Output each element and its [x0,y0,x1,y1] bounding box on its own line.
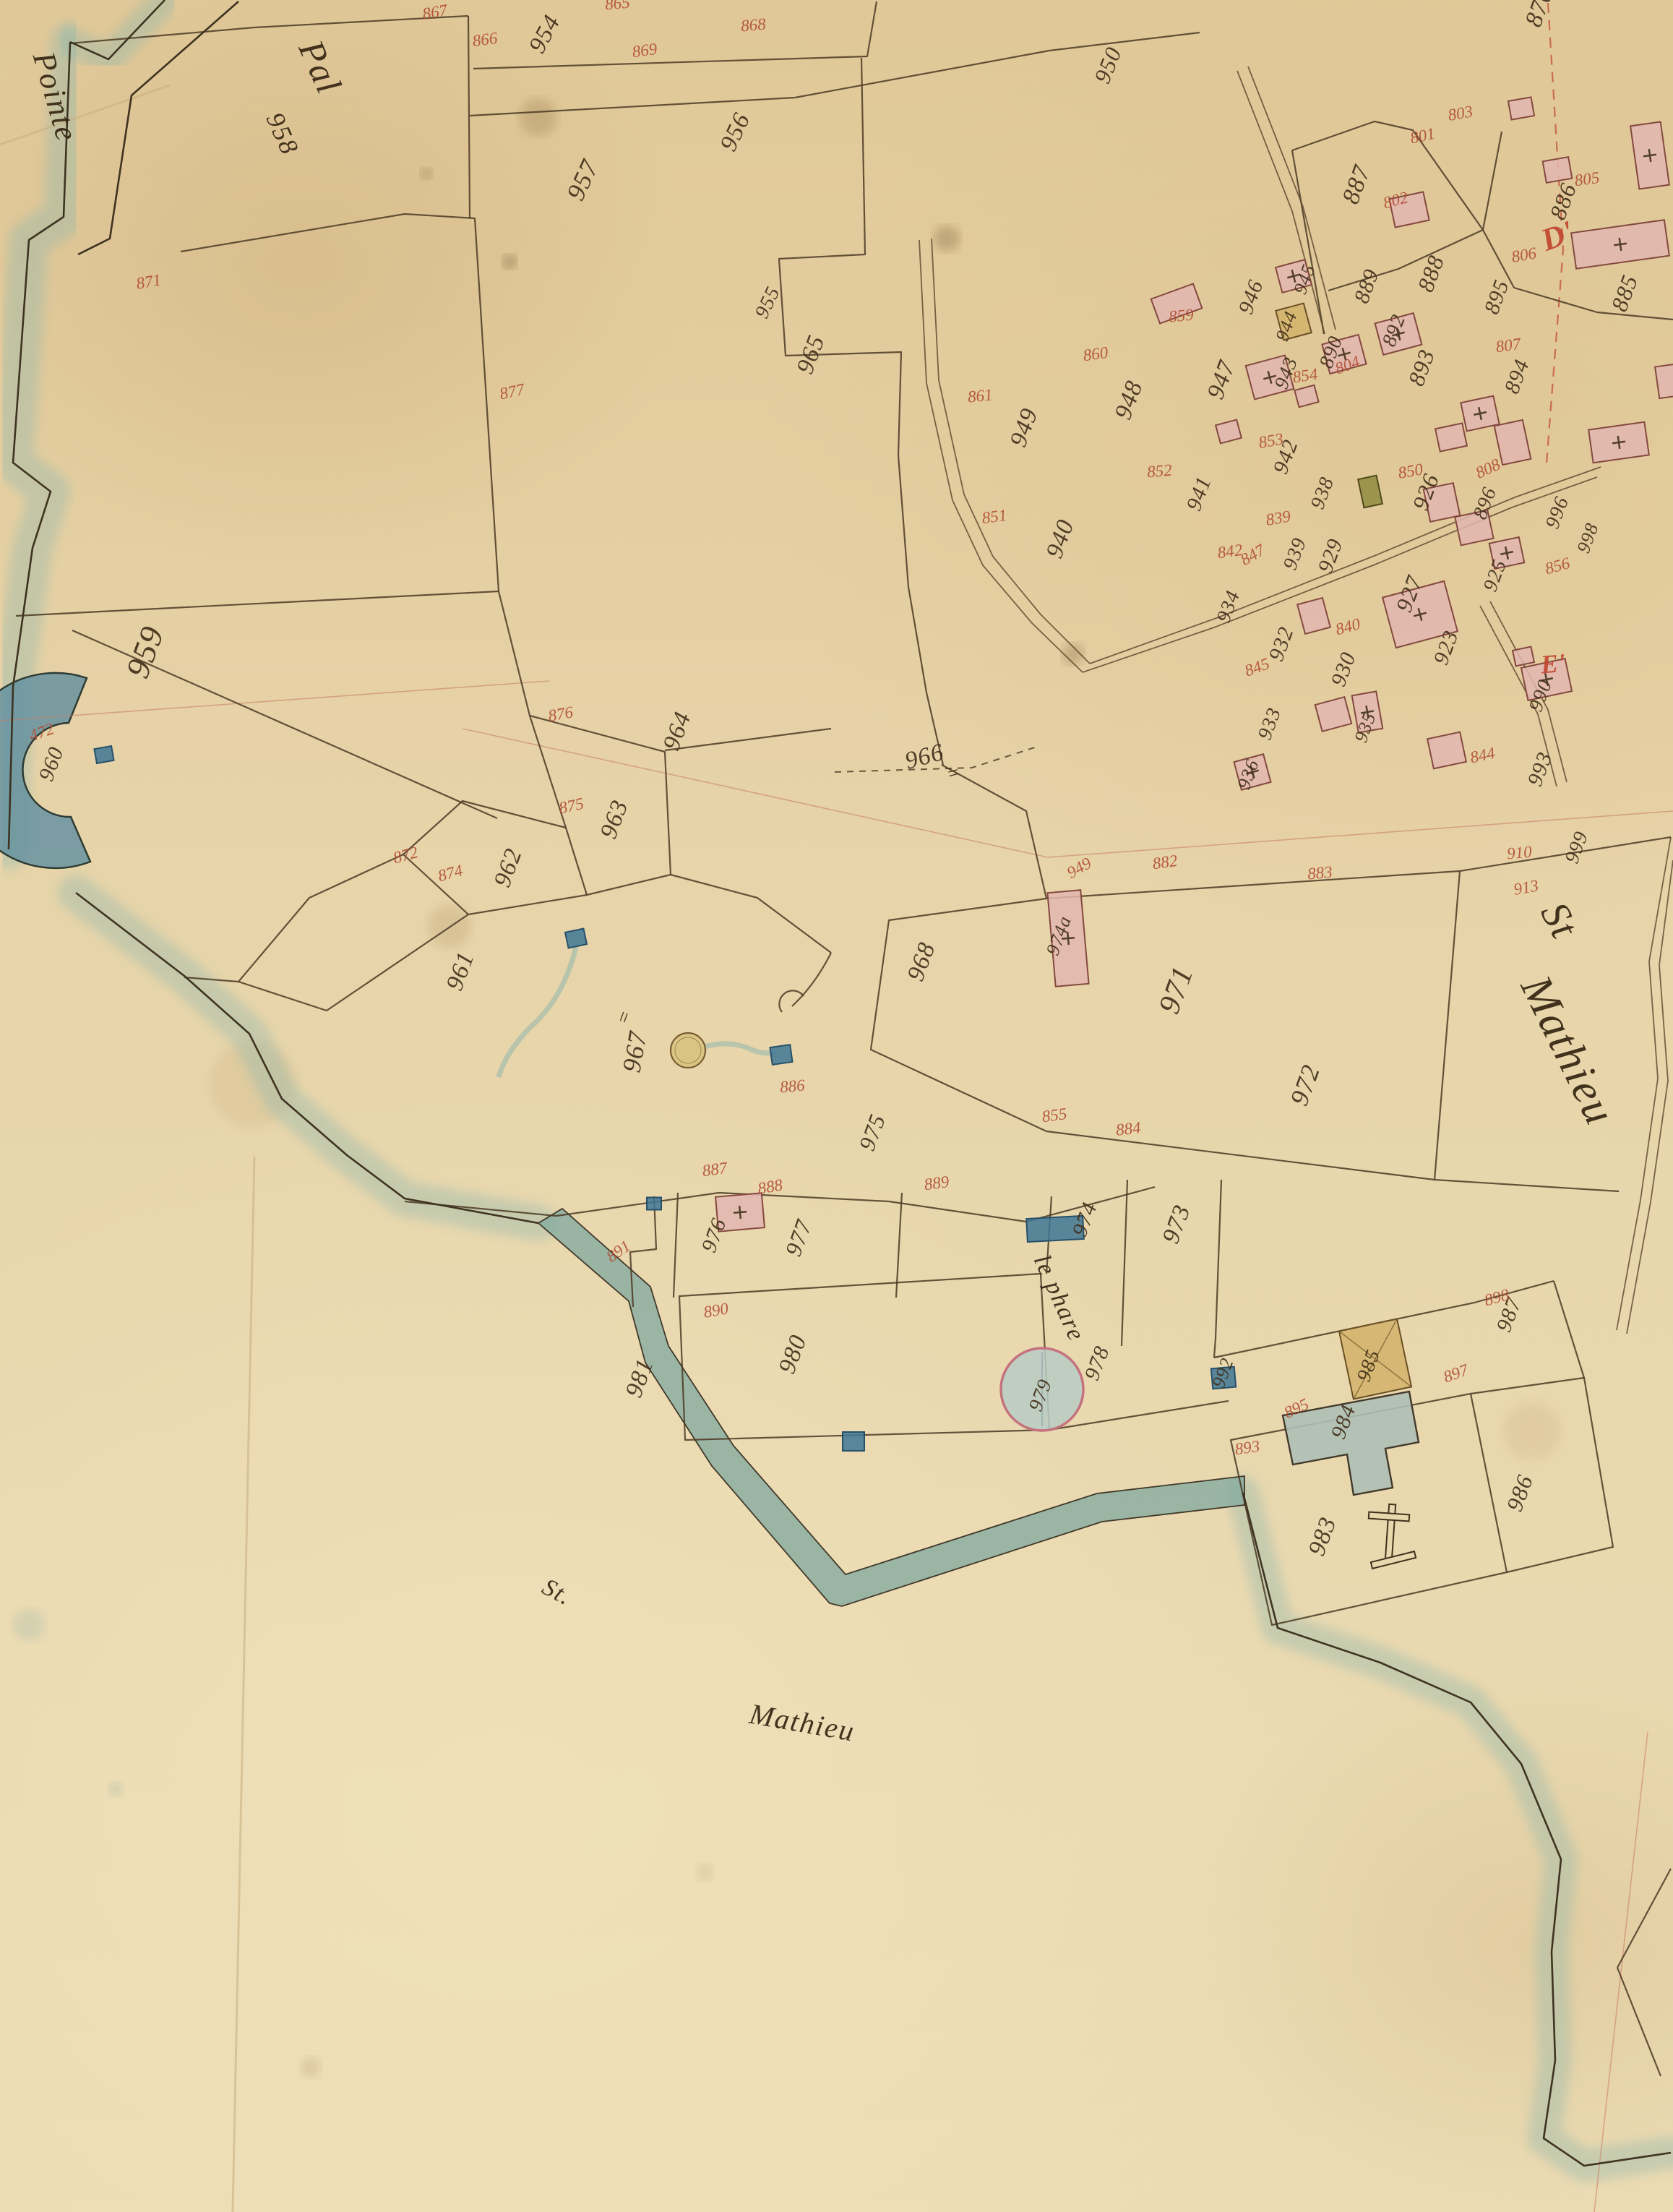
parcel-number-red: 877 [498,380,527,403]
parcel-boundary [674,1193,678,1298]
parcel-boundary [1435,871,1460,1180]
parcel-number-red: 884 [1115,1118,1142,1139]
parcel-number-black: 932 [1264,624,1298,664]
place-name-label: Mathieu [747,1697,858,1748]
building-pink [1513,647,1534,666]
parcel-number-black: 980 [774,1332,812,1377]
surveyor-equals-mark: = [944,760,963,786]
parcel-number-black: 934 [1213,588,1245,626]
parcel-number-black: 941 [1182,473,1216,514]
parcel-boundary [499,591,671,895]
parcel-boundary [468,16,470,218]
parcel-number-black: 983 [1304,1514,1342,1559]
parcel-boundary [181,214,475,252]
paper-stain [301,2057,321,2078]
parcel-number-red: 867 [421,1,450,23]
parcel-number-black: 967 [617,1028,653,1074]
place-name-label: Mathieu [1511,967,1625,1133]
building-blue [647,1198,661,1210]
parcel-boundary [1214,1339,1216,1358]
parcel-number-red: 840 [1333,614,1362,638]
building-pink [1427,732,1466,769]
parcel-number-black: 895 [1479,277,1513,317]
paper-stain [108,1782,123,1796]
paper-stain [520,98,557,136]
survey-line-red [463,729,1048,857]
road-edge [932,239,1090,664]
well-circle [671,1033,705,1068]
parcel-boundary [1514,288,1673,320]
parcel-number-black: 961 [442,948,480,994]
parcel-number-red: 874 [436,861,465,885]
parcel-number-black: 999 [1561,828,1594,867]
parcel-number-red: 861 [967,385,994,406]
parcel-boundary [779,58,943,765]
paper-crease [233,1157,254,2212]
building-pink [1508,97,1534,119]
parcel-boundary [1617,1869,1671,2076]
parcel-number-red: 806 [1510,244,1539,266]
section-letter: E' [1539,648,1566,680]
building-blue [565,929,587,948]
parcel-boundary [475,218,499,591]
parcel-number-black: 939 [1279,535,1312,573]
parcel-boundary [1122,1180,1127,1346]
parcel-number-black: 954 [524,11,566,58]
parcel-number-black: 896 [1469,484,1502,523]
parcel-number-red: 883 [1307,863,1333,883]
paper-stain [696,1864,713,1881]
parcel-number-black: 996 [1541,494,1574,532]
parcel-boundary [871,899,1046,1131]
parcel-number-black: 974 [1067,1199,1101,1240]
parcel-number-red: 868 [740,15,767,35]
parcel-number-black: 965 [792,332,830,377]
building-pink [1297,598,1330,634]
parcel-boundary [679,1274,1049,1440]
parcel-number-black: 949 [1005,405,1044,450]
road-edge [1627,860,1673,1334]
water-wash [1243,1493,1671,2166]
parcel-number-red: 869 [631,40,658,61]
parcel-number-red: 842 [1216,541,1244,562]
parcel-number-red: 897 [1441,1360,1471,1386]
parcel-number-black: 894 [1500,356,1534,397]
parcel-number-black: 973 [1158,1201,1196,1247]
parcel-number-black: 870 [1521,0,1559,30]
parcel-number-red: 871 [135,270,163,293]
building-pink [1588,422,1649,463]
parcel-number-red: 854 [1291,365,1319,387]
parcel-number-black: 963 [595,797,634,842]
parcel-number-red: 805 [1573,168,1601,190]
road-edge [919,240,1083,672]
cemetery-cross [1369,1512,1409,1522]
parcel-number-black: 950 [1089,43,1127,87]
parcel-number-red: 888 [757,1175,785,1198]
coastline [78,1,238,254]
surveyor-equals-mark: = [611,1006,637,1027]
place-name-label: St [1531,895,1587,946]
place-name-label: 958 [260,108,304,160]
parcel-boundary [1328,230,1483,291]
parcel-number-black: 959 [119,621,171,682]
place-name-label: St. [538,1574,577,1611]
parcel-number-black: 929 [1313,536,1347,576]
parcel-boundary [1046,1131,1435,1180]
parcel-boundary [1292,121,1483,230]
parcel-number-black: 947 [1203,356,1242,403]
road-edge [1083,477,1597,672]
parcel-number-black: 940 [1041,516,1080,562]
parcel-number-red: 860 [1082,343,1109,365]
parcel-number-red: 876 [547,703,575,725]
section-letter: D' [1536,214,1578,258]
building-pink [1543,157,1573,183]
parcel-number-red: 886 [779,1076,806,1097]
parcel-number-black: 956 [715,108,755,155]
parcel-boundary [1216,1180,1221,1339]
parcel-number-black: 948 [1110,377,1148,423]
cemetery-cross [1371,1551,1416,1569]
parcel-number-red: 801 [1408,124,1437,147]
parcel-boundary [1554,1281,1584,1378]
parcel-number-red: 859 [1168,306,1195,326]
place-name-label: Pal [291,33,350,100]
place-name-label: le phare [1028,1251,1091,1345]
parcel-number-black: 960 [34,744,68,784]
parcel-number-red: 887 [701,1159,729,1180]
building-olive [1358,476,1382,508]
stream [705,1044,775,1053]
harbor-rampart [538,1209,1244,1606]
building-blue [94,746,113,763]
paper-stain [13,1609,45,1641]
parcel-number-black: 972 [1284,1060,1325,1109]
parcel-number-black: 993 [1523,749,1557,789]
paper-stain [1503,1402,1561,1460]
coastline [1243,1493,1671,2166]
parcel-number-black: 955 [751,283,785,322]
parcel-number-red: 890 [702,1299,731,1321]
building-blue [770,1045,792,1065]
building-pink [1571,220,1669,269]
parcel-number-red: 844 [1468,744,1497,767]
parcel-boundary [1435,1180,1619,1191]
parcel-number-red: 852 [1146,461,1173,481]
parcel-number-red: 913 [1513,876,1540,899]
parcel-number-red: 845 [1242,654,1272,680]
parcel-boundary [792,953,831,1006]
parcel-boundary [16,591,499,616]
cadastral-map-sheet: 8709549569579508878898888868858958948938… [0,0,1673,2212]
parcel-number-red: 856 [1543,554,1572,578]
water-wash [76,893,538,1223]
parcel-number-black: 930 [1326,649,1360,690]
map-canvas: 8709549569579508878898888868858958948938… [0,0,1673,2212]
building-pink [1630,122,1669,189]
stream [499,947,576,1077]
parcel-number-black: 885 [1606,271,1643,314]
parcel-number-black: 962 [489,845,528,891]
parcel-boundary [779,990,804,1012]
building-pink [1216,420,1242,444]
parcel-number-red: 803 [1447,102,1474,124]
building-pink [1435,423,1467,451]
survey-line-red [1594,1732,1648,2212]
parcel-number-red: 875 [557,794,585,818]
parcel-number-red: 872 [391,843,420,867]
parcel-number-black: 968 [903,939,941,985]
parcel-number-red: 865 [604,0,631,13]
parcel-number-black: 946 [1234,277,1268,317]
parcel-number-red: 808 [1473,455,1503,481]
building-pink [1655,364,1673,398]
building-pink [1494,420,1531,465]
parcel-number-black: 975 [853,1110,890,1154]
parcel-number-red: 882 [1151,852,1179,873]
parcel-number-black: 978 [1080,1343,1114,1384]
parcel-number-black: 957 [561,155,605,205]
paper-stain [502,254,517,269]
road-edge [1617,837,1671,1330]
parcel-number-black: 966 [902,739,947,775]
paper-stain [934,226,960,252]
parcel-number-red: 893 [1234,1437,1261,1459]
paper-stain [421,168,432,179]
parcel-number-red: 949 [1064,854,1095,882]
parcel-number-black: 887 [1338,161,1377,207]
parcel-number-red: 855 [1041,1105,1068,1126]
building-blue [843,1432,864,1451]
parcel-number-black: 971 [1153,962,1200,1019]
parcel-boundary [671,875,831,953]
parcel-number-black: 893 [1403,346,1440,389]
parcel-number-red: 910 [1506,843,1533,863]
parcel-number-red: 851 [981,506,1008,528]
parcel-number-red: 866 [471,29,499,51]
building-pink [1315,697,1351,732]
parcel-number-red: 839 [1265,507,1293,529]
parcel-boundary [1483,132,1514,288]
building-pink [1294,385,1318,407]
parcel-number-black: 938 [1307,474,1339,513]
parcel-number-black: 998 [1573,520,1603,555]
parcel-number-red: 889 [923,1173,950,1194]
parcel-number-red: 807 [1494,335,1523,356]
parcel-number-black: 889 [1349,266,1383,306]
parcel-number-black: 888 [1412,252,1449,295]
parcel-number-black: 986 [1501,1471,1538,1514]
parcel-number-black: 933 [1254,705,1286,743]
parcel-boundary [942,765,1046,899]
parcel-number-black: 977 [780,1215,817,1259]
